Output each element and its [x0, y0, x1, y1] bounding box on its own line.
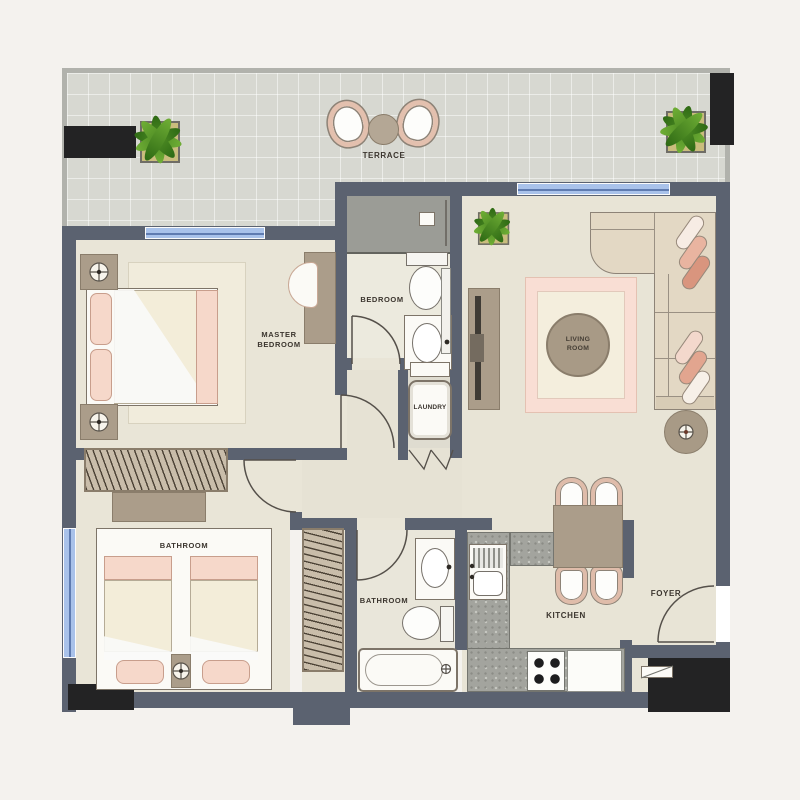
pillow [202, 660, 250, 684]
shower-head-icon [419, 212, 435, 226]
wall [398, 370, 408, 448]
bathtub-inner [365, 654, 443, 686]
floor-plan: { "plan": { "labels": { "terrace": "TERR… [0, 0, 800, 800]
terrace-wall-band [64, 126, 136, 158]
wall [405, 518, 492, 530]
window [517, 183, 670, 195]
wall [398, 448, 408, 460]
laundry-label: LAUNDRY [408, 404, 452, 412]
pillow [116, 660, 164, 684]
wall [335, 370, 347, 395]
toilet-icon [402, 606, 440, 640]
pillow [90, 349, 112, 401]
bed-runner [104, 556, 172, 580]
stove-icon [527, 651, 565, 691]
bed-runner [190, 556, 258, 580]
master-bedroom-label: MASTER BEDROOM [248, 330, 310, 350]
toilet-tank [406, 252, 448, 266]
doorway [335, 395, 347, 448]
doorway [290, 460, 302, 512]
foyer-label: FOYER [626, 589, 706, 599]
toilet-icon [409, 266, 443, 310]
dining-table [553, 505, 623, 568]
tv-box [470, 334, 484, 362]
wall [628, 645, 718, 658]
drainboard [473, 548, 503, 568]
nightstand [80, 404, 118, 440]
living-room-label: LIVING ROOM [558, 336, 598, 354]
laundry-shelf [410, 362, 450, 377]
wall [623, 520, 634, 578]
window [145, 227, 265, 239]
bathroom-label: BATHROOM [344, 596, 424, 606]
nightstand [171, 654, 191, 688]
wall [345, 518, 357, 708]
side-table [664, 410, 708, 454]
wall-niche [441, 268, 451, 354]
dining-chair [556, 566, 587, 604]
coffee-table: LIVING ROOM [546, 313, 610, 377]
wardrobe [302, 528, 344, 672]
terrace-table [368, 114, 399, 145]
wardrobe [84, 448, 228, 492]
entry-threshold [641, 666, 673, 678]
column [710, 73, 734, 145]
doorway [352, 358, 400, 370]
terrace-label: TERRACE [334, 151, 434, 161]
wall [335, 196, 347, 370]
window [63, 528, 76, 658]
wall [335, 358, 352, 370]
twin-bedroom-label: BATHROOM [144, 541, 224, 551]
kitchen-counter [510, 532, 554, 566]
dresser [112, 492, 206, 522]
nightstand [80, 254, 118, 290]
pillow [90, 293, 112, 345]
bedroom-label: BEDROOM [351, 295, 413, 305]
wall [293, 703, 350, 725]
kitchen-label: KITCHEN [526, 611, 606, 621]
bed-runner [196, 290, 218, 404]
doorway [357, 518, 405, 530]
dining-chair [591, 566, 622, 604]
sink-icon [412, 323, 442, 363]
sink-bowl [473, 571, 503, 596]
wall [455, 530, 467, 650]
sink-icon [421, 548, 449, 588]
toilet-tank [440, 606, 454, 642]
entrance-opening [716, 586, 730, 642]
counter-white [567, 650, 622, 692]
wall [62, 692, 652, 708]
